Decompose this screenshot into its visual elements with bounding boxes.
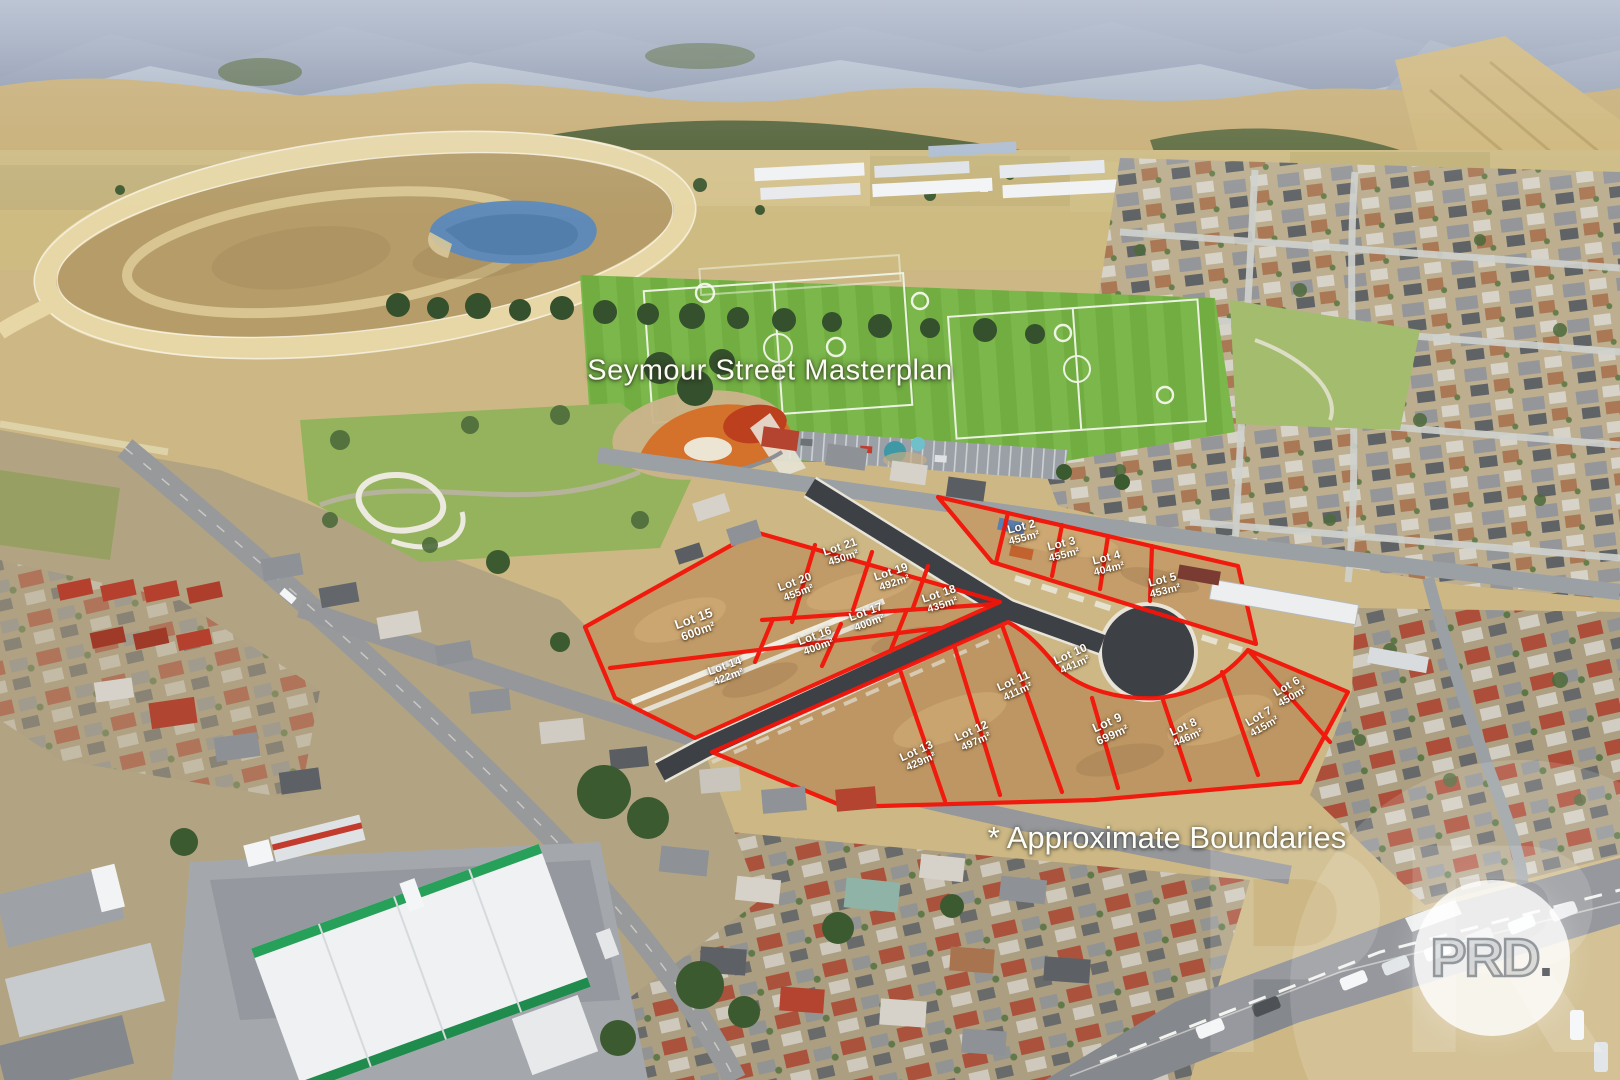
aerial-listing-photo: Seymour Street Masterplan * Approximate … (0, 0, 1620, 1080)
masterplan-title: Seymour Street Masterplan (587, 355, 952, 388)
prd-logo-text: PRD (1430, 927, 1538, 989)
prd-logo-badge: PRD. (1414, 880, 1570, 1036)
atmospheric-haze (0, 0, 1620, 220)
prd-logo-dot: . (1539, 927, 1554, 989)
